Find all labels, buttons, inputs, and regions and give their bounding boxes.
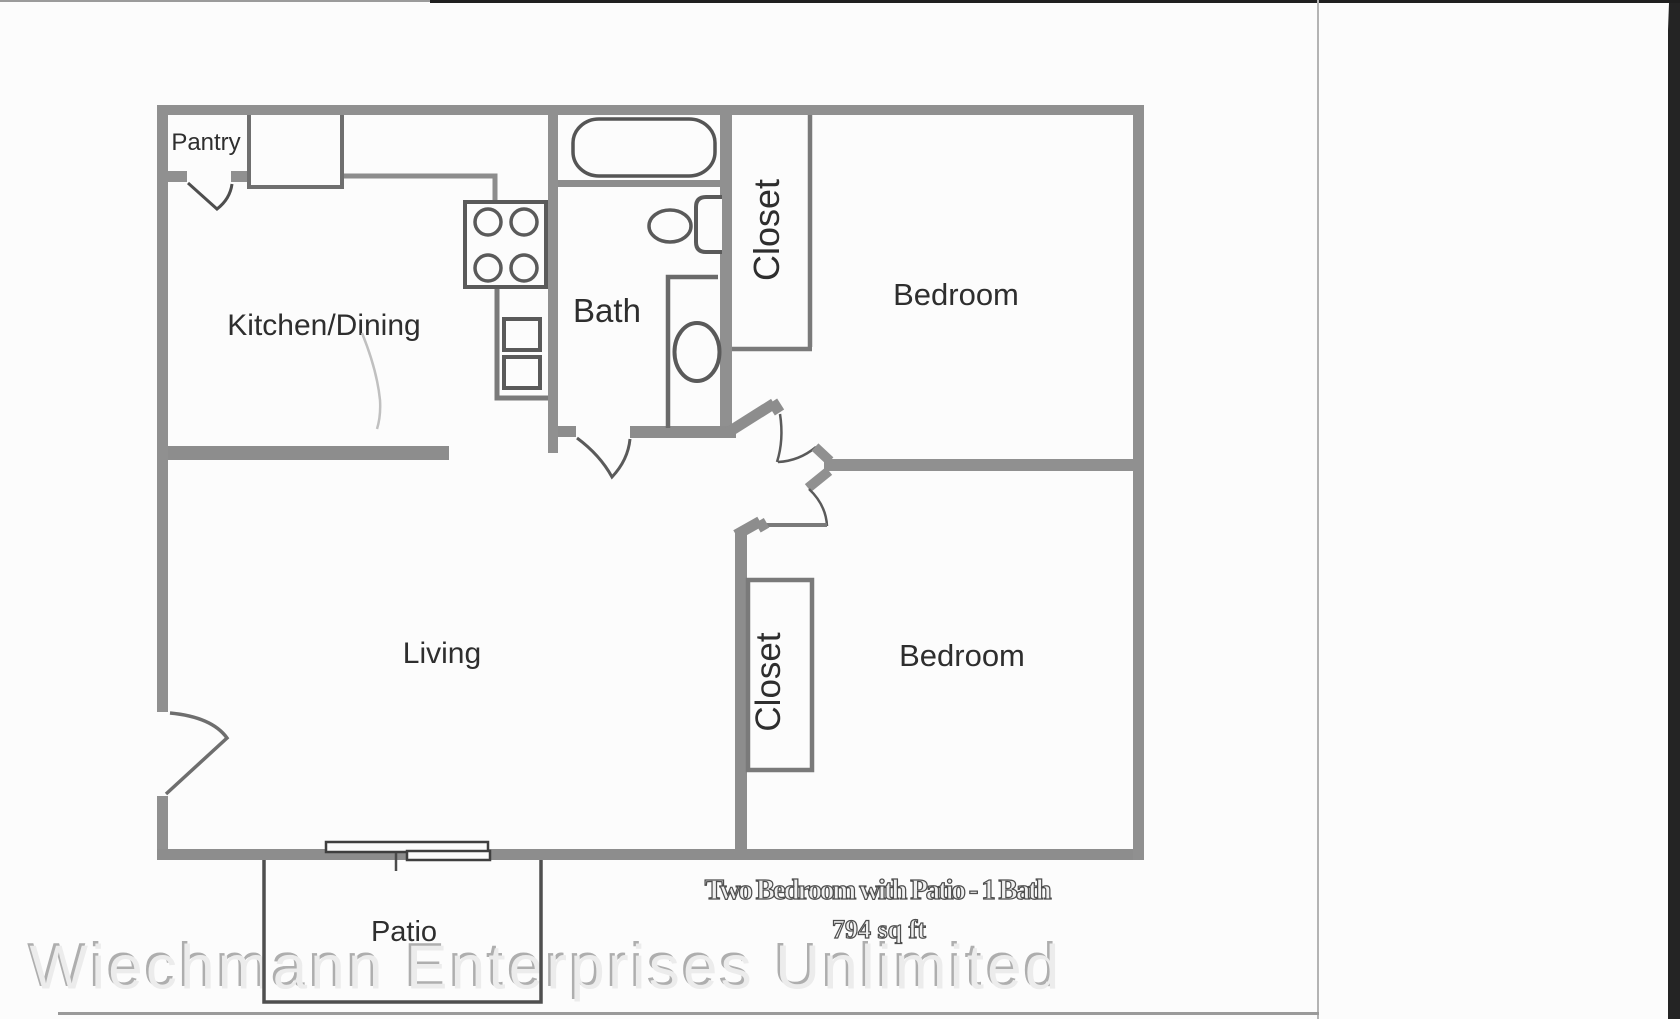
svg-text:Bath: Bath <box>573 292 641 329</box>
svg-text:Closet: Closet <box>749 632 788 731</box>
svg-text:Bedroom: Bedroom <box>899 638 1025 673</box>
svg-text:Pantry: Pantry <box>171 129 240 156</box>
svg-text:Living: Living <box>403 637 481 670</box>
svg-text:Closet: Closet <box>746 179 787 281</box>
svg-text:Two Bedroom with Patio - 1 Bat: Two Bedroom with Patio - 1 Bath <box>705 874 1052 906</box>
svg-text:Bedroom: Bedroom <box>893 277 1019 312</box>
svg-text:Patio: Patio <box>371 916 437 948</box>
svg-text:Kitchen/Dining: Kitchen/Dining <box>227 309 420 342</box>
svg-text:794 sq ft: 794 sq ft <box>832 915 926 944</box>
